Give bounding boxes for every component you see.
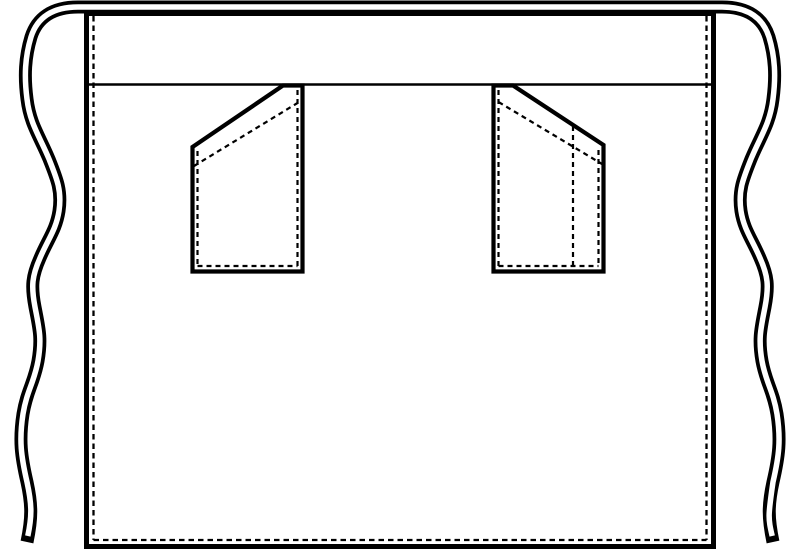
apron-diagram (0, 0, 800, 554)
apron-body (87, 14, 714, 547)
apron-flat-sketch (0, 0, 800, 554)
